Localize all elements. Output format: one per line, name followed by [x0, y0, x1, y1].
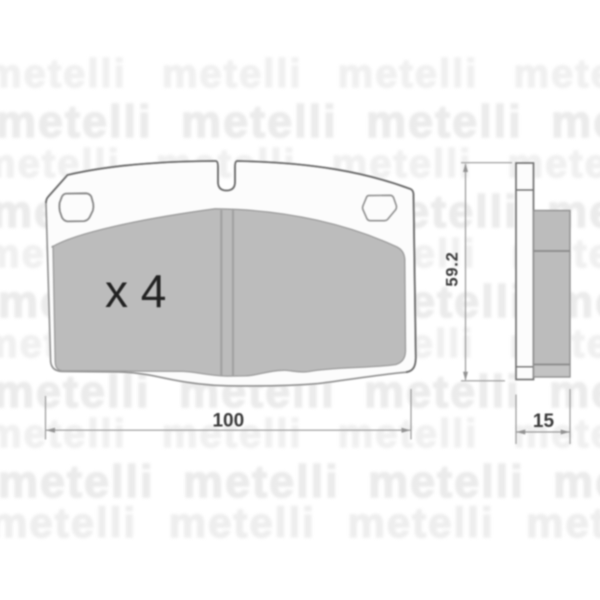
svg-text:x 4: x 4 [105, 265, 166, 317]
svg-text:100: 100 [212, 411, 244, 432]
svg-text:15: 15 [533, 411, 555, 432]
svg-text:59.2: 59.2 [444, 251, 462, 286]
